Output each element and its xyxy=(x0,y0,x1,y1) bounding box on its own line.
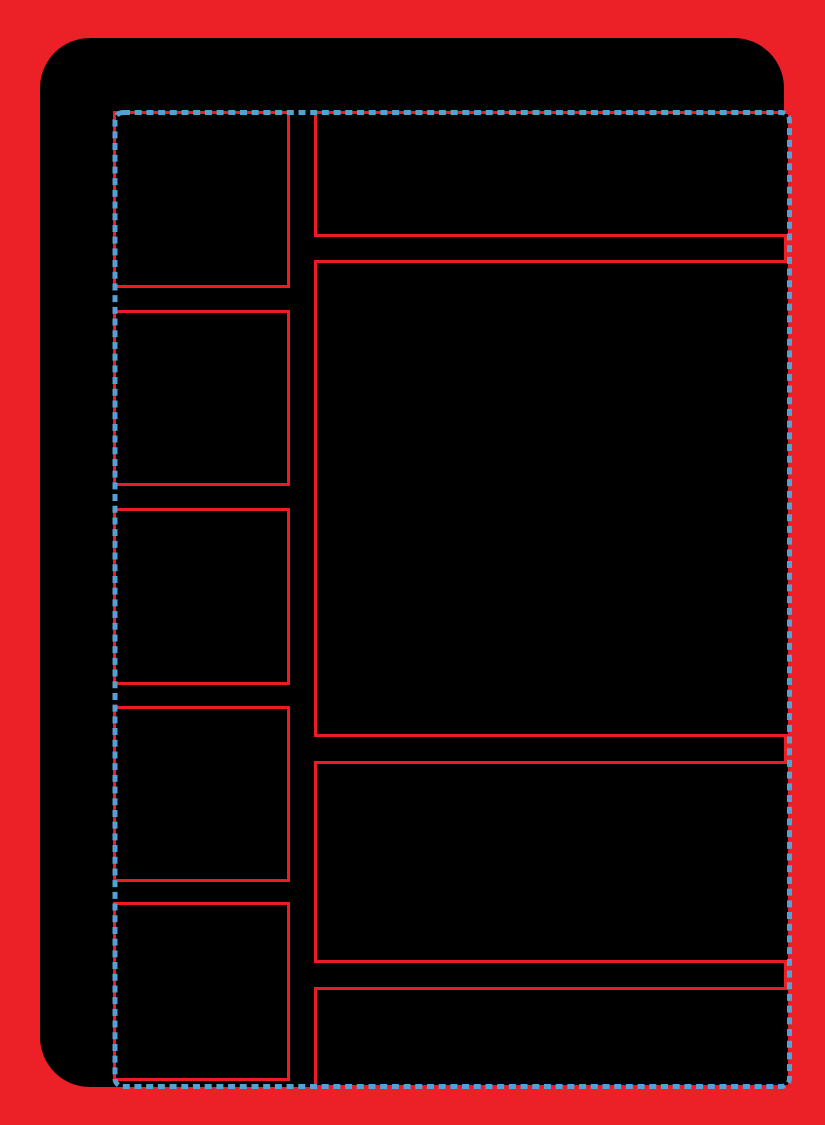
right-panel-medium xyxy=(314,761,791,963)
left-panel-1 xyxy=(113,111,290,288)
right-panel-top xyxy=(314,111,791,237)
card-canvas xyxy=(40,38,784,1087)
right-panel-bottom xyxy=(314,987,791,1088)
left-panel-5 xyxy=(113,902,290,1081)
left-panel-4 xyxy=(113,706,290,882)
left-panel-2 xyxy=(113,310,290,486)
right-panel-large xyxy=(314,260,791,737)
page-background xyxy=(0,0,825,1125)
left-panel-3 xyxy=(113,508,290,685)
